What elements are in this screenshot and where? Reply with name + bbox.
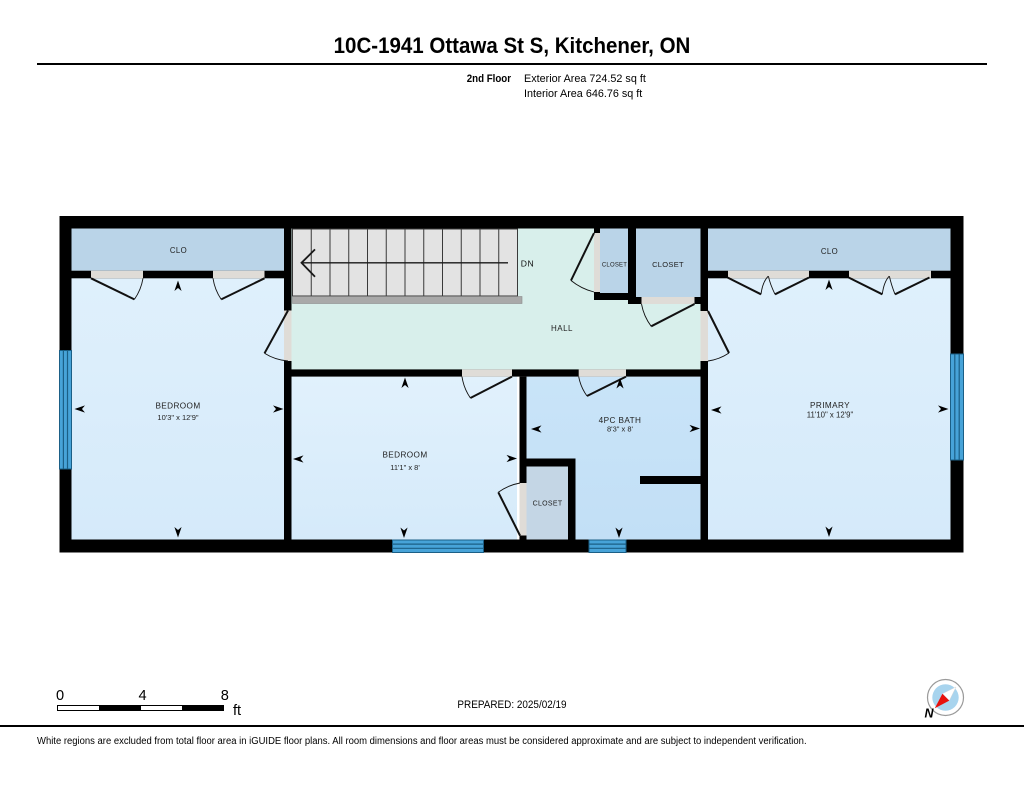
svg-text:BEDROOM: BEDROOM	[155, 402, 200, 411]
svg-text:10'3" x 12'9": 10'3" x 12'9"	[157, 413, 198, 422]
svg-text:N: N	[925, 707, 935, 721]
svg-text:BEDROOM: BEDROOM	[382, 451, 427, 460]
svg-text:11'10" x 12'9": 11'10" x 12'9"	[807, 411, 854, 420]
svg-text:PRIMARY: PRIMARY	[810, 401, 850, 410]
svg-text:11'1" x 8': 11'1" x 8'	[390, 463, 420, 472]
svg-text:CLO: CLO	[170, 246, 187, 255]
svg-text:CLOSET: CLOSET	[652, 260, 684, 269]
svg-text:DN: DN	[521, 259, 534, 269]
svg-text:CLO: CLO	[821, 247, 838, 256]
svg-text:HALL: HALL	[551, 324, 573, 333]
svg-text:CLOSET: CLOSET	[533, 501, 563, 508]
svg-text:8'3" x 8': 8'3" x 8'	[607, 425, 634, 434]
svg-text:CLOSET: CLOSET	[602, 263, 627, 269]
